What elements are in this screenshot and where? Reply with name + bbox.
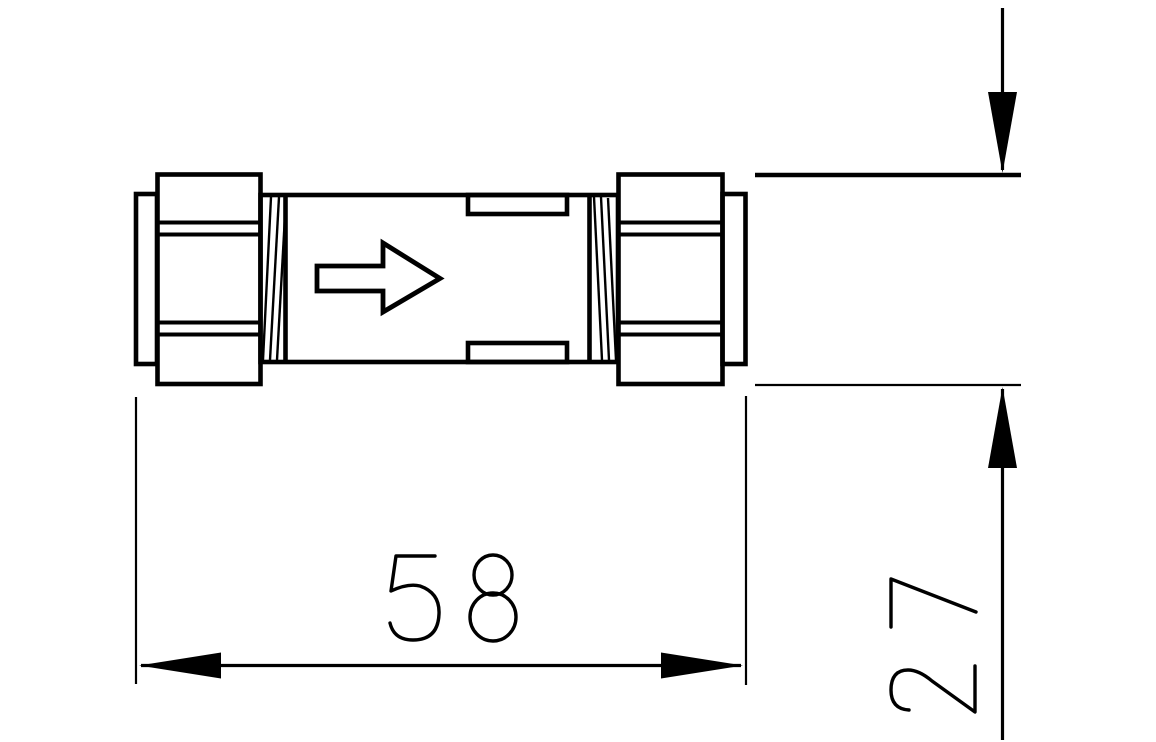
drawing-canvas: [0, 0, 1156, 742]
cartridge-tab-bottom: [468, 343, 567, 362]
cartridge-tab-top: [468, 195, 567, 214]
hatch-line: [263, 197, 271, 360]
left-compression-nut: [158, 175, 261, 385]
dimension-arrowhead-up: [988, 387, 1017, 468]
hatch-line: [601, 197, 609, 360]
thread-hatch-right: [594, 197, 616, 360]
technical-drawing: [0, 0, 1156, 742]
dimension-length-value: [390, 555, 516, 641]
dimension-arrowhead-left: [139, 653, 221, 679]
digit-5: [390, 556, 439, 640]
dimension-arrowhead-right: [661, 653, 743, 679]
digit-7: [891, 579, 976, 627]
valve-part: [136, 175, 746, 385]
dimension-length: [136, 396, 746, 685]
digit-8: [470, 555, 516, 641]
dimension-arrowhead-down: [988, 92, 1017, 173]
dimension-height-value: [891, 579, 976, 712]
left-pipe-stub: [136, 194, 157, 364]
flow-direction-arrow-icon: [317, 243, 440, 312]
right-compression-nut: [619, 175, 723, 385]
right-pipe-stub: [723, 194, 746, 364]
digit-2: [891, 666, 975, 712]
hatch-line: [594, 197, 602, 360]
thread-hatch-left: [263, 197, 286, 360]
dimension-height: [755, 8, 1021, 740]
hatch-line: [608, 198, 616, 360]
